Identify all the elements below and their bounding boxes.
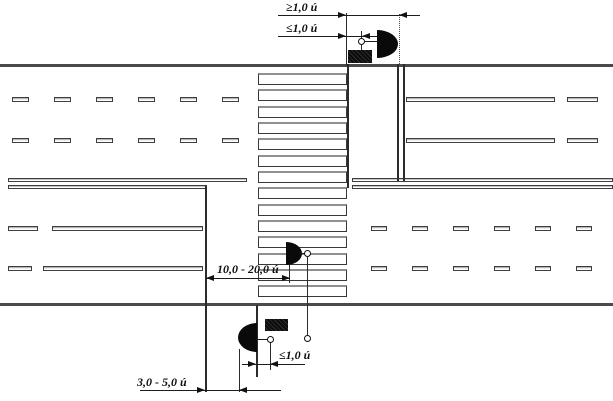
arrowhead-icon [206, 275, 214, 281]
dimension-label-bottom-inner: ≤1,0 ú [279, 349, 310, 362]
arrowhead-icon [248, 361, 256, 367]
lane-dash [535, 266, 551, 271]
footway-edge-left [205, 186, 207, 392]
zebra-stripe [258, 89, 347, 101]
lane-dash [453, 226, 469, 231]
sign-icon-bottom [265, 319, 288, 331]
lane-dash [12, 138, 29, 143]
zebra-stripe [258, 155, 347, 167]
lane-dash-top-right-1 [567, 97, 598, 102]
lane-dash [222, 97, 239, 102]
dimension-label-middle: 10,0 - 20,0 ú [217, 263, 279, 276]
lane-dash [535, 226, 551, 231]
median-line-left-lower [8, 185, 207, 189]
zebra-stripe [258, 122, 347, 134]
kerb-line-right-of-crossing [347, 64, 349, 188]
footway-edge-right-b [403, 64, 405, 181]
lane-line-top-right-1 [406, 97, 555, 102]
pole-icon-bottom-right [304, 335, 311, 342]
lane-dash [138, 138, 155, 143]
zebra-stripe [258, 236, 347, 248]
arrowhead-icon [270, 361, 278, 367]
pole-connector-top [364, 41, 378, 42]
streetlight-icon-top [377, 30, 398, 58]
lane-dash [96, 138, 113, 143]
lane-line-bottom-left-1 [52, 226, 203, 231]
lane-dash [453, 266, 469, 271]
zebra-stripe [258, 187, 347, 199]
arrowhead-icon [338, 33, 346, 39]
lane-dash [576, 266, 592, 271]
lane-dash [494, 266, 510, 271]
lane-dash-bottom-left-2 [8, 266, 32, 271]
lane-dash [222, 138, 239, 143]
pole-icon-middle [304, 250, 311, 257]
sign-icon-top [348, 50, 372, 63]
diagram-canvas: ≥1,0 ú ≤1,0 ú 10,0 - 20,0 ú ≤1,0 ú 3,0 -… [0, 0, 613, 401]
lane-dash [494, 226, 510, 231]
lane-line-bottom-left-2 [43, 266, 203, 271]
extension-line-crossing-edge-top [346, 13, 347, 66]
lane-dash [371, 266, 387, 271]
zebra-stripe [258, 171, 347, 183]
median-line-right-upper [352, 178, 613, 182]
arrowhead-icon [338, 12, 346, 18]
dimension-label-top-inner: ≤1,0 ú [286, 22, 317, 35]
lane-dash [180, 97, 197, 102]
arrowhead-icon [239, 387, 247, 393]
road-edge-top [0, 64, 613, 67]
dimension-line-middle [206, 278, 290, 279]
extension-line-lamp-bottom [239, 349, 240, 392]
zebra-stripe [258, 138, 347, 150]
lane-dash [412, 266, 428, 271]
footway-edge-right-a [397, 64, 399, 181]
zebra-stripe [258, 106, 347, 118]
lane-dash [576, 226, 592, 231]
lane-dash [138, 97, 155, 102]
median-line-right-lower [352, 185, 613, 189]
lane-dash [371, 226, 387, 231]
extension-line-lamp-top [399, 14, 400, 66]
lane-dash [54, 97, 71, 102]
streetlight-icon-bottom [238, 323, 257, 352]
lane-dash [54, 138, 71, 143]
dimension-label-bottom-outer: 3,0 - 5,0 ú [137, 376, 187, 389]
lane-line-top-right-2 [406, 138, 555, 143]
pole-leader-line-middle [307, 257, 308, 336]
lane-dash [12, 97, 29, 102]
lane-dash-bottom-left-1 [8, 226, 38, 231]
pole-icon-bottom-left [267, 336, 274, 343]
zebra-stripe [258, 220, 347, 232]
arrowhead-icon [399, 12, 407, 18]
arrowhead-icon [197, 387, 205, 393]
zebra-stripe [258, 73, 347, 85]
lane-dash-top-right-2 [567, 138, 598, 143]
dimension-line-bottom-outer [140, 390, 281, 391]
zebra-stripe [258, 285, 347, 297]
lane-dash [412, 226, 428, 231]
lane-dash [96, 97, 113, 102]
median-line-left-upper [8, 178, 247, 182]
pole-icon-top [358, 38, 365, 45]
zebra-stripe [258, 204, 347, 216]
arrowhead-icon [282, 275, 290, 281]
dimension-label-top-outer: ≥1,0 ú [286, 1, 317, 14]
lane-dash [180, 138, 197, 143]
